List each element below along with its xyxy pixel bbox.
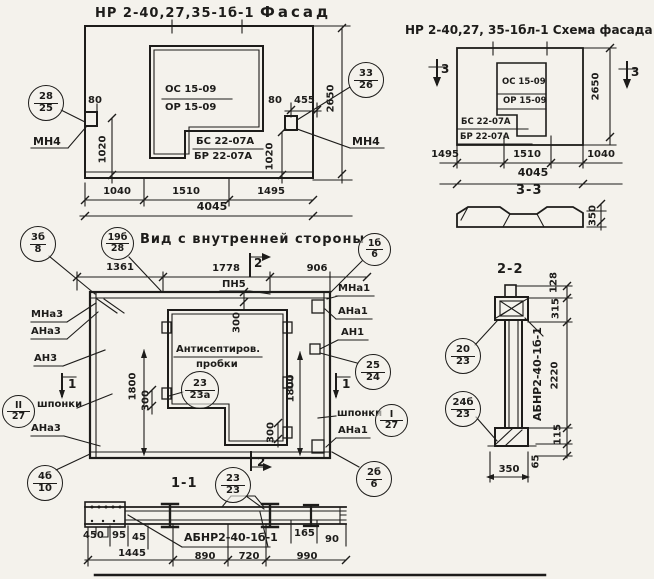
dim-80-left: 80 bbox=[88, 95, 102, 106]
callout-top: 28 bbox=[39, 92, 53, 103]
section-3-3-title: 3-3 bbox=[516, 184, 543, 198]
label-pn5: ПН5 bbox=[222, 279, 246, 290]
dim-350-base: 350 bbox=[495, 464, 523, 475]
dim-1800-right: 1800 bbox=[286, 367, 297, 411]
label-shponki-left: шпонки bbox=[37, 399, 82, 410]
dim-1020-right: 1020 bbox=[265, 135, 276, 179]
callout-bottom: 27 bbox=[380, 420, 403, 431]
dim-455: 455 bbox=[294, 95, 315, 106]
callout-28-25: 2825 bbox=[28, 85, 64, 121]
dim-300-top: 300 bbox=[232, 307, 243, 339]
callout-3b-8: 3б8 bbox=[20, 226, 56, 262]
dim-1495: 1495 bbox=[254, 186, 288, 197]
dim-315: 315 bbox=[551, 293, 562, 325]
callout-top: II bbox=[15, 401, 22, 411]
callout-2b-6: 2б6 bbox=[356, 461, 392, 497]
dim-1510: 1510 bbox=[169, 186, 203, 197]
schema-title-name: Схема фасада bbox=[553, 23, 653, 37]
facade-title-name: Фасад bbox=[260, 3, 331, 21]
callout-bottom: 8 bbox=[30, 244, 47, 256]
dim-95: 95 bbox=[112, 530, 126, 541]
section-mark-3-left: 3 bbox=[441, 63, 449, 76]
dim-990: 990 bbox=[290, 551, 324, 562]
dim-1495-schema: 1495 bbox=[428, 149, 462, 160]
dim-450: 450 bbox=[83, 530, 104, 541]
callout-23-23a: 2323а bbox=[181, 371, 219, 409]
schema-sill-mark-top: БС 22-07А bbox=[461, 118, 510, 127]
dim-890: 890 bbox=[188, 551, 222, 562]
callout-1b-6: 1б6 bbox=[358, 233, 391, 266]
dim-1361: 1361 bbox=[103, 262, 137, 273]
dim-115: 115 bbox=[553, 419, 564, 451]
callout-top: 19б bbox=[108, 233, 128, 243]
schema-window-mark-top: ОС 15-09 bbox=[502, 78, 546, 87]
dim-300-left: 300 bbox=[141, 385, 152, 417]
panel-mark-2-2: АБНР2-40-1б-1 bbox=[532, 309, 544, 439]
callout-bottom: 23 bbox=[221, 485, 245, 497]
dim-4045-schema: 4045 bbox=[511, 167, 555, 179]
facade-sill-mark-top: БС 22-07А bbox=[196, 136, 254, 147]
dim-2220: 2220 bbox=[550, 354, 561, 398]
anchor-label-mn4-left: МН4 bbox=[33, 136, 61, 148]
callout-bottom: 26 bbox=[354, 80, 378, 92]
callout-bottom: 27 bbox=[7, 411, 30, 422]
dim-45: 45 bbox=[132, 532, 146, 543]
callout-33-26: 3326 bbox=[348, 62, 384, 98]
label-ana3-top: АНа3 bbox=[31, 326, 61, 337]
section-mark-1-left: 1 bbox=[68, 378, 76, 391]
callout-25-24: 2524 bbox=[355, 354, 391, 390]
dim-4045-facade: 4045 bbox=[190, 201, 234, 213]
dim-2650-schema: 2650 bbox=[591, 65, 602, 109]
label-mna3: МНа3 bbox=[31, 309, 63, 320]
callout-top: 4б bbox=[38, 472, 52, 483]
callout-bottom: 10 bbox=[33, 483, 57, 495]
facade-title-code: НР 2-40,27,35-1б-1 bbox=[95, 6, 254, 21]
dim-165: 165 bbox=[294, 528, 315, 539]
dim-65: 65 bbox=[531, 448, 542, 476]
section-2-2-title: 2-2 bbox=[497, 263, 524, 277]
dim-1445: 1445 bbox=[115, 548, 149, 559]
callout-bottom: 23 bbox=[451, 356, 475, 368]
callout-top: 23 bbox=[226, 474, 240, 485]
facade-sill-mark-bottom: БР 22-07А bbox=[194, 151, 252, 162]
callout-bottom: 6 bbox=[366, 249, 383, 260]
dim-1778: 1778 bbox=[209, 263, 243, 274]
callout-bottom: 25 bbox=[34, 103, 58, 115]
label-ana1-top: АНа1 bbox=[338, 306, 368, 317]
schema-title-code: НР 2-40,27, 35-1бл-1 bbox=[405, 23, 549, 37]
dim-1020-left: 1020 bbox=[98, 128, 109, 172]
section-mark-2-top: 2 bbox=[254, 257, 262, 270]
dim-720: 720 bbox=[232, 551, 266, 562]
callout-top: 24б bbox=[453, 398, 474, 409]
dim-2650-facade: 2650 bbox=[326, 77, 337, 121]
callout-top: 25 bbox=[366, 361, 380, 372]
dim-1040-schema: 1040 bbox=[584, 149, 618, 160]
callout-4b-10: 4б10 bbox=[27, 465, 63, 501]
schema-sill-mark-bottom: БР 22-07А bbox=[460, 133, 509, 142]
section-mark-1-right: 1 bbox=[342, 378, 350, 391]
label-mna1: МНа1 bbox=[338, 283, 370, 294]
callout-24b-23: 24б23 bbox=[445, 391, 481, 427]
callout-bottom: 23 bbox=[451, 409, 475, 421]
dim-906: 906 bbox=[302, 263, 332, 274]
callout-19b-28: 19б28 bbox=[101, 227, 134, 260]
label-an1: АН1 bbox=[341, 327, 364, 338]
inner-view-title: Вид с внутренней стороны bbox=[140, 233, 365, 247]
callout-20-23: 2023 bbox=[445, 338, 481, 374]
facade-window-mark-top: ОС 15-09 bbox=[165, 84, 216, 95]
schema-window-mark-bottom: ОР 15-09 bbox=[503, 97, 547, 106]
callout-top: 20 bbox=[456, 345, 470, 356]
callout-top: 2б bbox=[367, 468, 381, 479]
callout-i-27: I27 bbox=[375, 404, 408, 437]
section-mark-3-right: 3 bbox=[631, 66, 639, 79]
dim-350-schema: 350 bbox=[588, 199, 599, 233]
dim-90: 90 bbox=[325, 534, 339, 545]
label-ana3-bottom: АНа3 bbox=[31, 423, 61, 434]
section-1-1-title: 1-1 bbox=[171, 477, 198, 491]
dim-300-right: 300 bbox=[266, 417, 277, 449]
blueprint-sheet: НР 2-40,27,35-1б-1 Фасад ОС 15-09 ОР 15-… bbox=[0, 0, 654, 579]
callout-top: 23 bbox=[193, 379, 207, 390]
dim-80-right: 80 bbox=[268, 95, 282, 106]
callout-bottom: 23а bbox=[185, 390, 216, 402]
schema-title: НР 2-40,27, 35-1бл-1 Схема фасада bbox=[405, 24, 653, 37]
section-mark-2-bottom: 2 bbox=[257, 456, 265, 469]
label-an3: АН3 bbox=[34, 353, 57, 364]
callout-bottom: 28 bbox=[106, 243, 129, 254]
dim-1800-left: 1800 bbox=[128, 365, 139, 409]
dim-1040: 1040 bbox=[100, 186, 134, 197]
callout-bottom: 24 bbox=[361, 372, 385, 384]
callout-23-23: 2323 bbox=[215, 467, 251, 503]
callout-top: 1б bbox=[368, 239, 381, 249]
callout-top: 33 bbox=[359, 69, 373, 80]
label-ana1-bottom: АНа1 bbox=[338, 425, 368, 436]
callout-bottom: 6 bbox=[366, 479, 383, 491]
anchor-label-mn4-right: МН4 bbox=[352, 136, 380, 148]
dim-1510-schema: 1510 bbox=[510, 149, 544, 160]
note-antiseptic-line1: Антисептиров. bbox=[176, 344, 260, 355]
facade-title: НР 2-40,27,35-1б-1 Фасад bbox=[95, 4, 331, 21]
callout-top: I bbox=[390, 410, 394, 420]
callout-top: 3б bbox=[31, 233, 45, 244]
facade-window-mark-bottom: ОР 15-09 bbox=[165, 102, 216, 113]
panel-mark-1-1: АБНР2-40-1б-1 bbox=[184, 532, 278, 544]
note-antiseptic-line2: пробки bbox=[196, 359, 238, 370]
